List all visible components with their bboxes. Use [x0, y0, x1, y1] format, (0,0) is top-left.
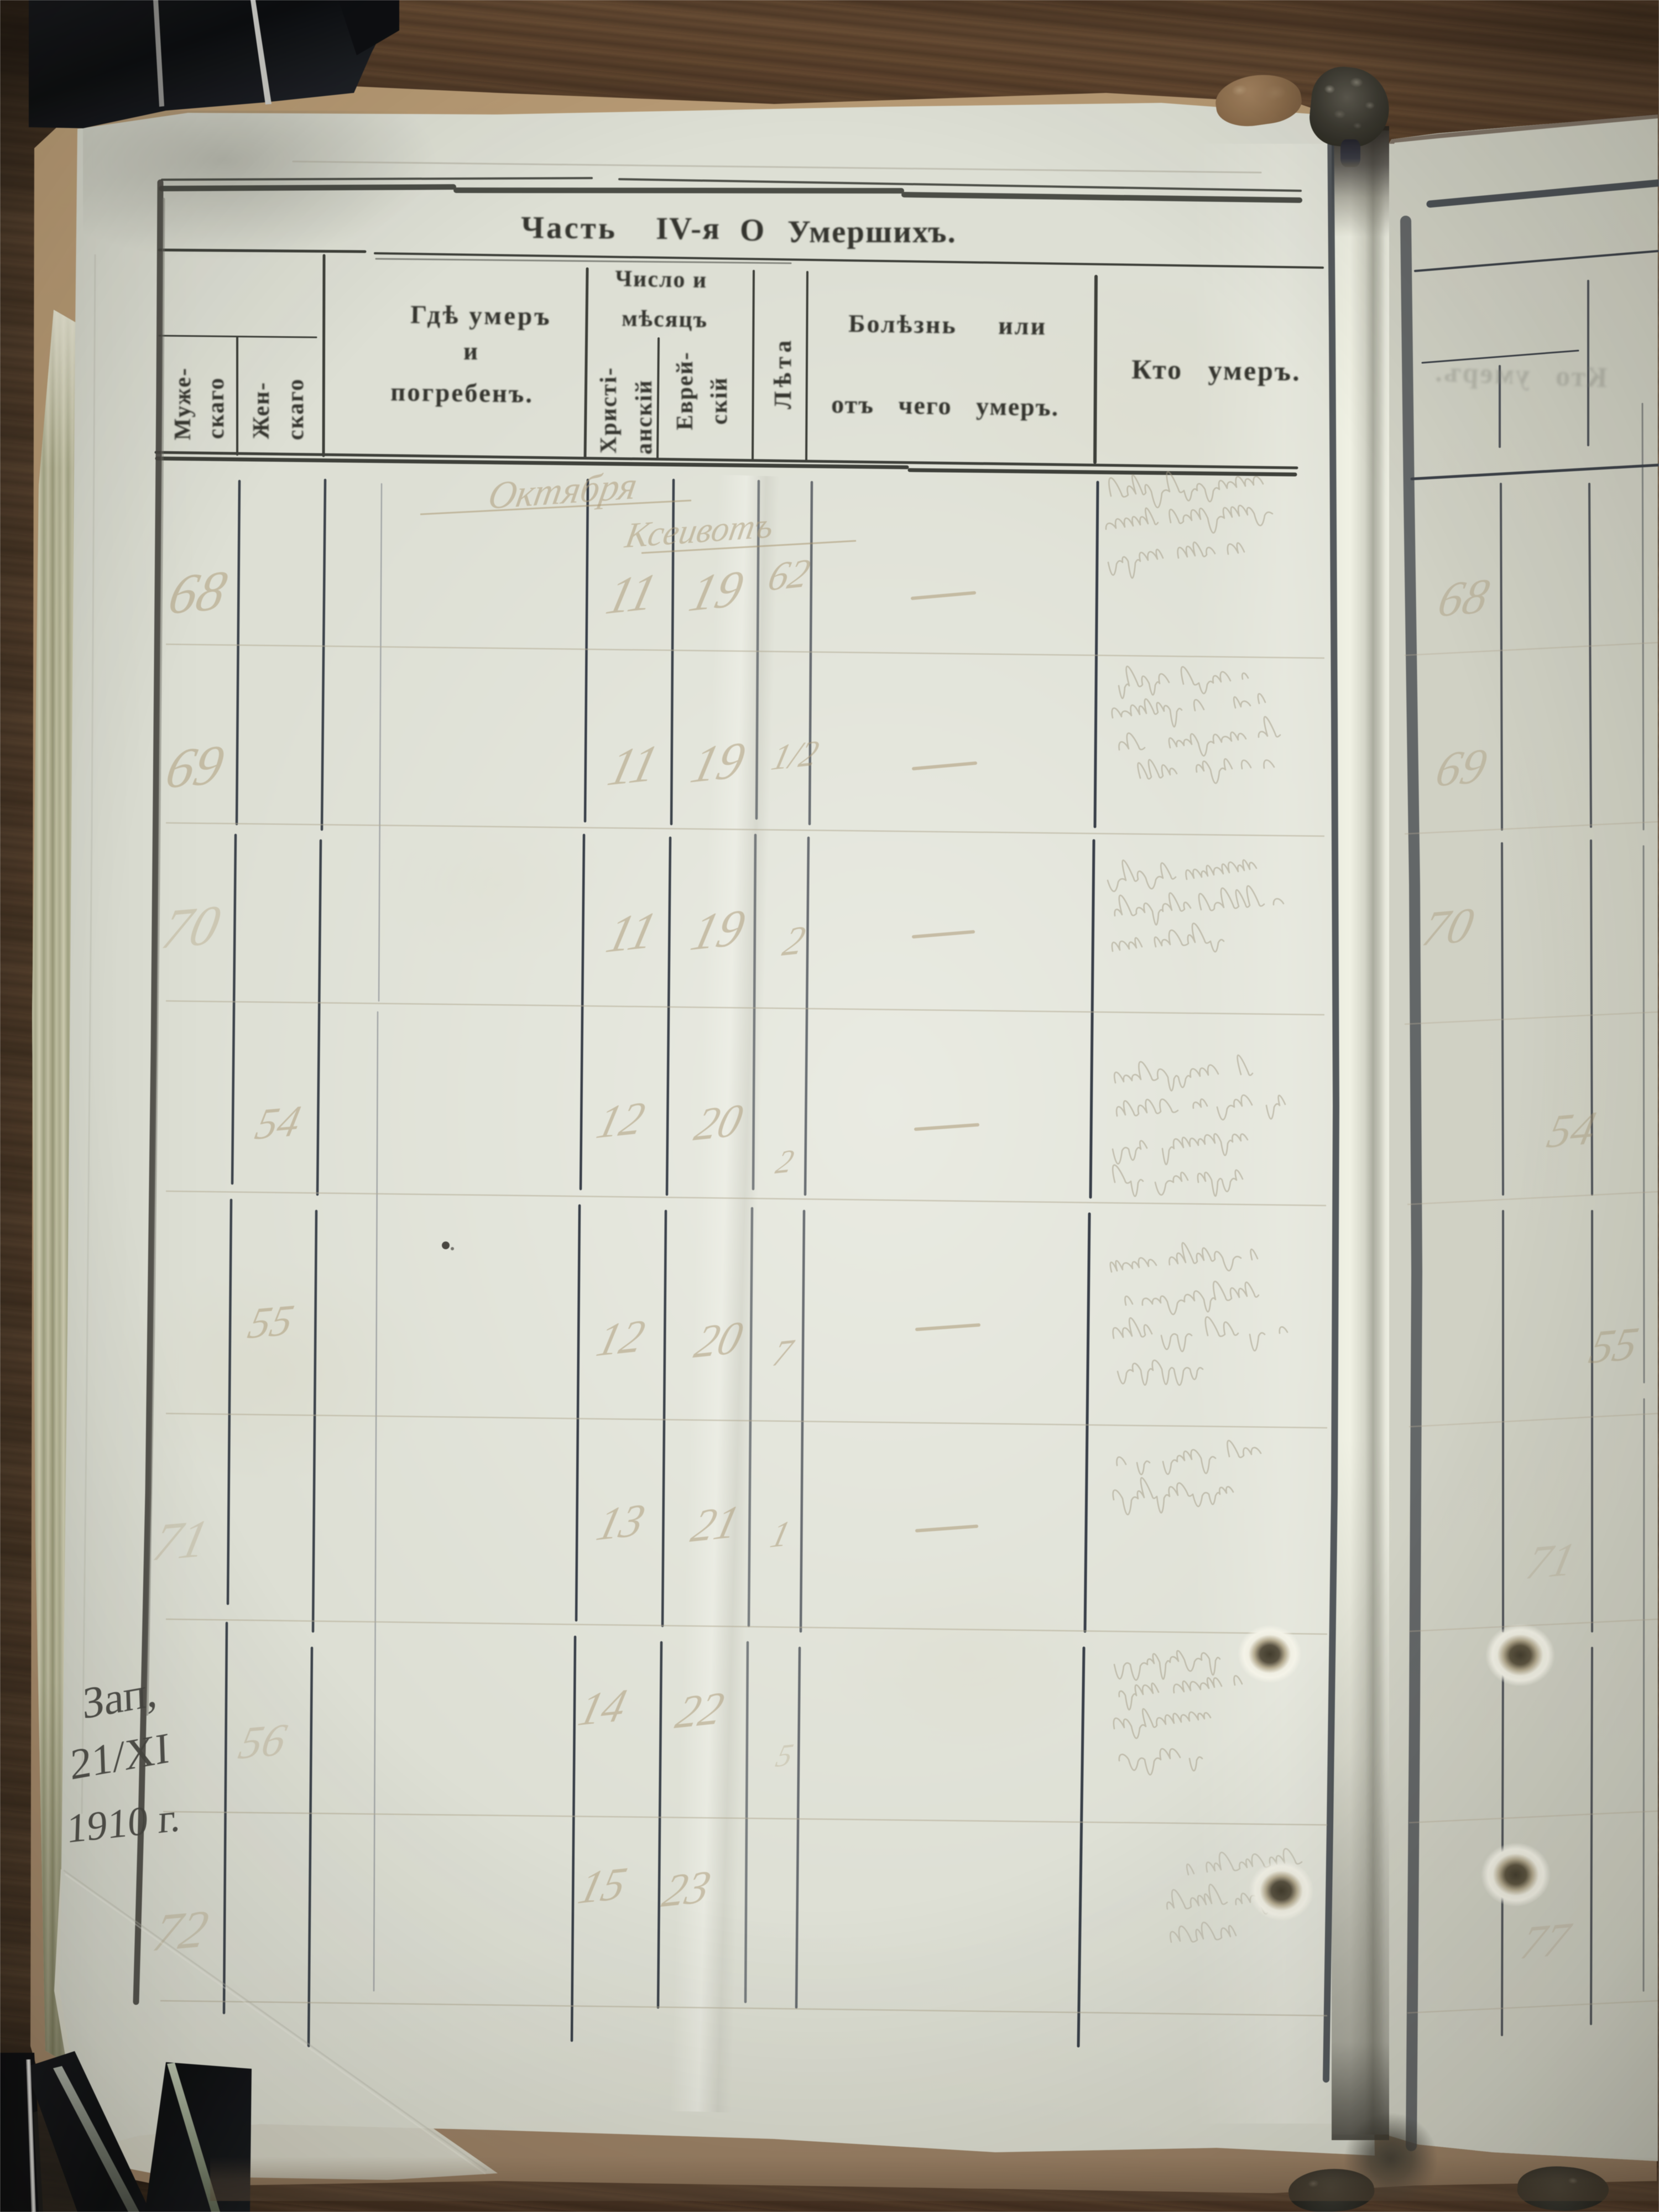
- svg-text:55: 55: [244, 1296, 298, 1348]
- svg-text:Болѣзнь или: Болѣзнь или: [848, 309, 1047, 340]
- svg-text:19: 19: [686, 898, 751, 962]
- svg-text:70: 70: [1417, 897, 1479, 957]
- svg-text:О: О: [740, 213, 764, 248]
- svg-text:77: 77: [1516, 1912, 1577, 1969]
- svg-text:и: и: [463, 337, 478, 365]
- svg-text:13: 13: [592, 1494, 650, 1551]
- svg-text:22: 22: [671, 1682, 729, 1739]
- svg-text:54: 54: [251, 1097, 305, 1149]
- svg-text:69: 69: [1431, 738, 1492, 797]
- svg-text:Зап,: Зап,: [82, 1666, 158, 1729]
- svg-text:62: 62: [764, 550, 815, 600]
- svg-text:отъ чего умеръ.: отъ чего умеръ.: [831, 390, 1060, 421]
- svg-text:69: 69: [160, 733, 230, 801]
- svg-text:Жен-: Жен-: [249, 382, 274, 439]
- svg-text:анскій: анскій: [632, 379, 657, 455]
- svg-text:погребенъ.: погребенъ.: [390, 378, 534, 409]
- svg-text:Еврей-: Еврей-: [672, 351, 698, 430]
- svg-text:скаго: скаго: [204, 377, 229, 439]
- svg-text:20: 20: [690, 1094, 748, 1151]
- svg-text:Кто умеръ.: Кто умеръ.: [1131, 353, 1301, 387]
- svg-text:71: 71: [148, 1509, 214, 1573]
- svg-text:Лѣта: Лѣта: [769, 337, 796, 409]
- svg-text:21/XI: 21/XI: [70, 1723, 170, 1789]
- svg-text:7: 7: [769, 1332, 798, 1374]
- svg-text:11: 11: [601, 900, 662, 964]
- svg-text:Христі-: Христі-: [596, 367, 622, 453]
- svg-text:19: 19: [686, 730, 751, 794]
- svg-text:70: 70: [156, 894, 226, 961]
- svg-text:55: 55: [1585, 1317, 1644, 1374]
- svg-text:IV-я: IV-я: [656, 211, 721, 246]
- svg-text:68: 68: [163, 559, 233, 627]
- svg-text:15: 15: [573, 1858, 632, 1914]
- svg-text:68: 68: [1433, 568, 1494, 628]
- svg-text:12: 12: [592, 1310, 650, 1366]
- svg-text:12: 12: [592, 1092, 650, 1149]
- svg-text:20: 20: [690, 1312, 748, 1368]
- svg-text:Муже-: Муже-: [170, 367, 196, 440]
- svg-text:Ксеивотъ: Ксеивотъ: [622, 505, 776, 556]
- svg-text:Умершихъ.: Умершихъ.: [787, 215, 957, 249]
- svg-text:11: 11: [601, 562, 662, 625]
- svg-text:1910 г.: 1910 г.: [66, 1794, 181, 1852]
- svg-text:71: 71: [1522, 1532, 1580, 1589]
- svg-text:14: 14: [573, 1679, 632, 1736]
- svg-text:Число и: Число и: [615, 266, 708, 293]
- svg-text:Гдѣ умеръ: Гдѣ умеръ: [410, 300, 552, 331]
- svg-text:19: 19: [684, 559, 749, 623]
- svg-text:мѣсяцъ: мѣсяцъ: [622, 306, 708, 333]
- svg-text:Кто умеръ.: Кто умеръ.: [1433, 356, 1608, 394]
- svg-text:1/2: 1/2: [768, 733, 823, 778]
- svg-text:2: 2: [773, 1142, 797, 1181]
- svg-text:Часть: Часть: [521, 210, 617, 246]
- svg-text:5: 5: [773, 1736, 797, 1774]
- svg-text:1: 1: [766, 1514, 794, 1556]
- svg-text:скаго: скаго: [283, 378, 309, 440]
- svg-text:скій: скій: [707, 377, 732, 425]
- svg-text:11: 11: [603, 733, 664, 797]
- svg-text:21: 21: [686, 1496, 744, 1552]
- svg-text:2: 2: [779, 917, 810, 965]
- svg-text:56: 56: [234, 1714, 291, 1769]
- svg-text:23: 23: [658, 1861, 716, 1917]
